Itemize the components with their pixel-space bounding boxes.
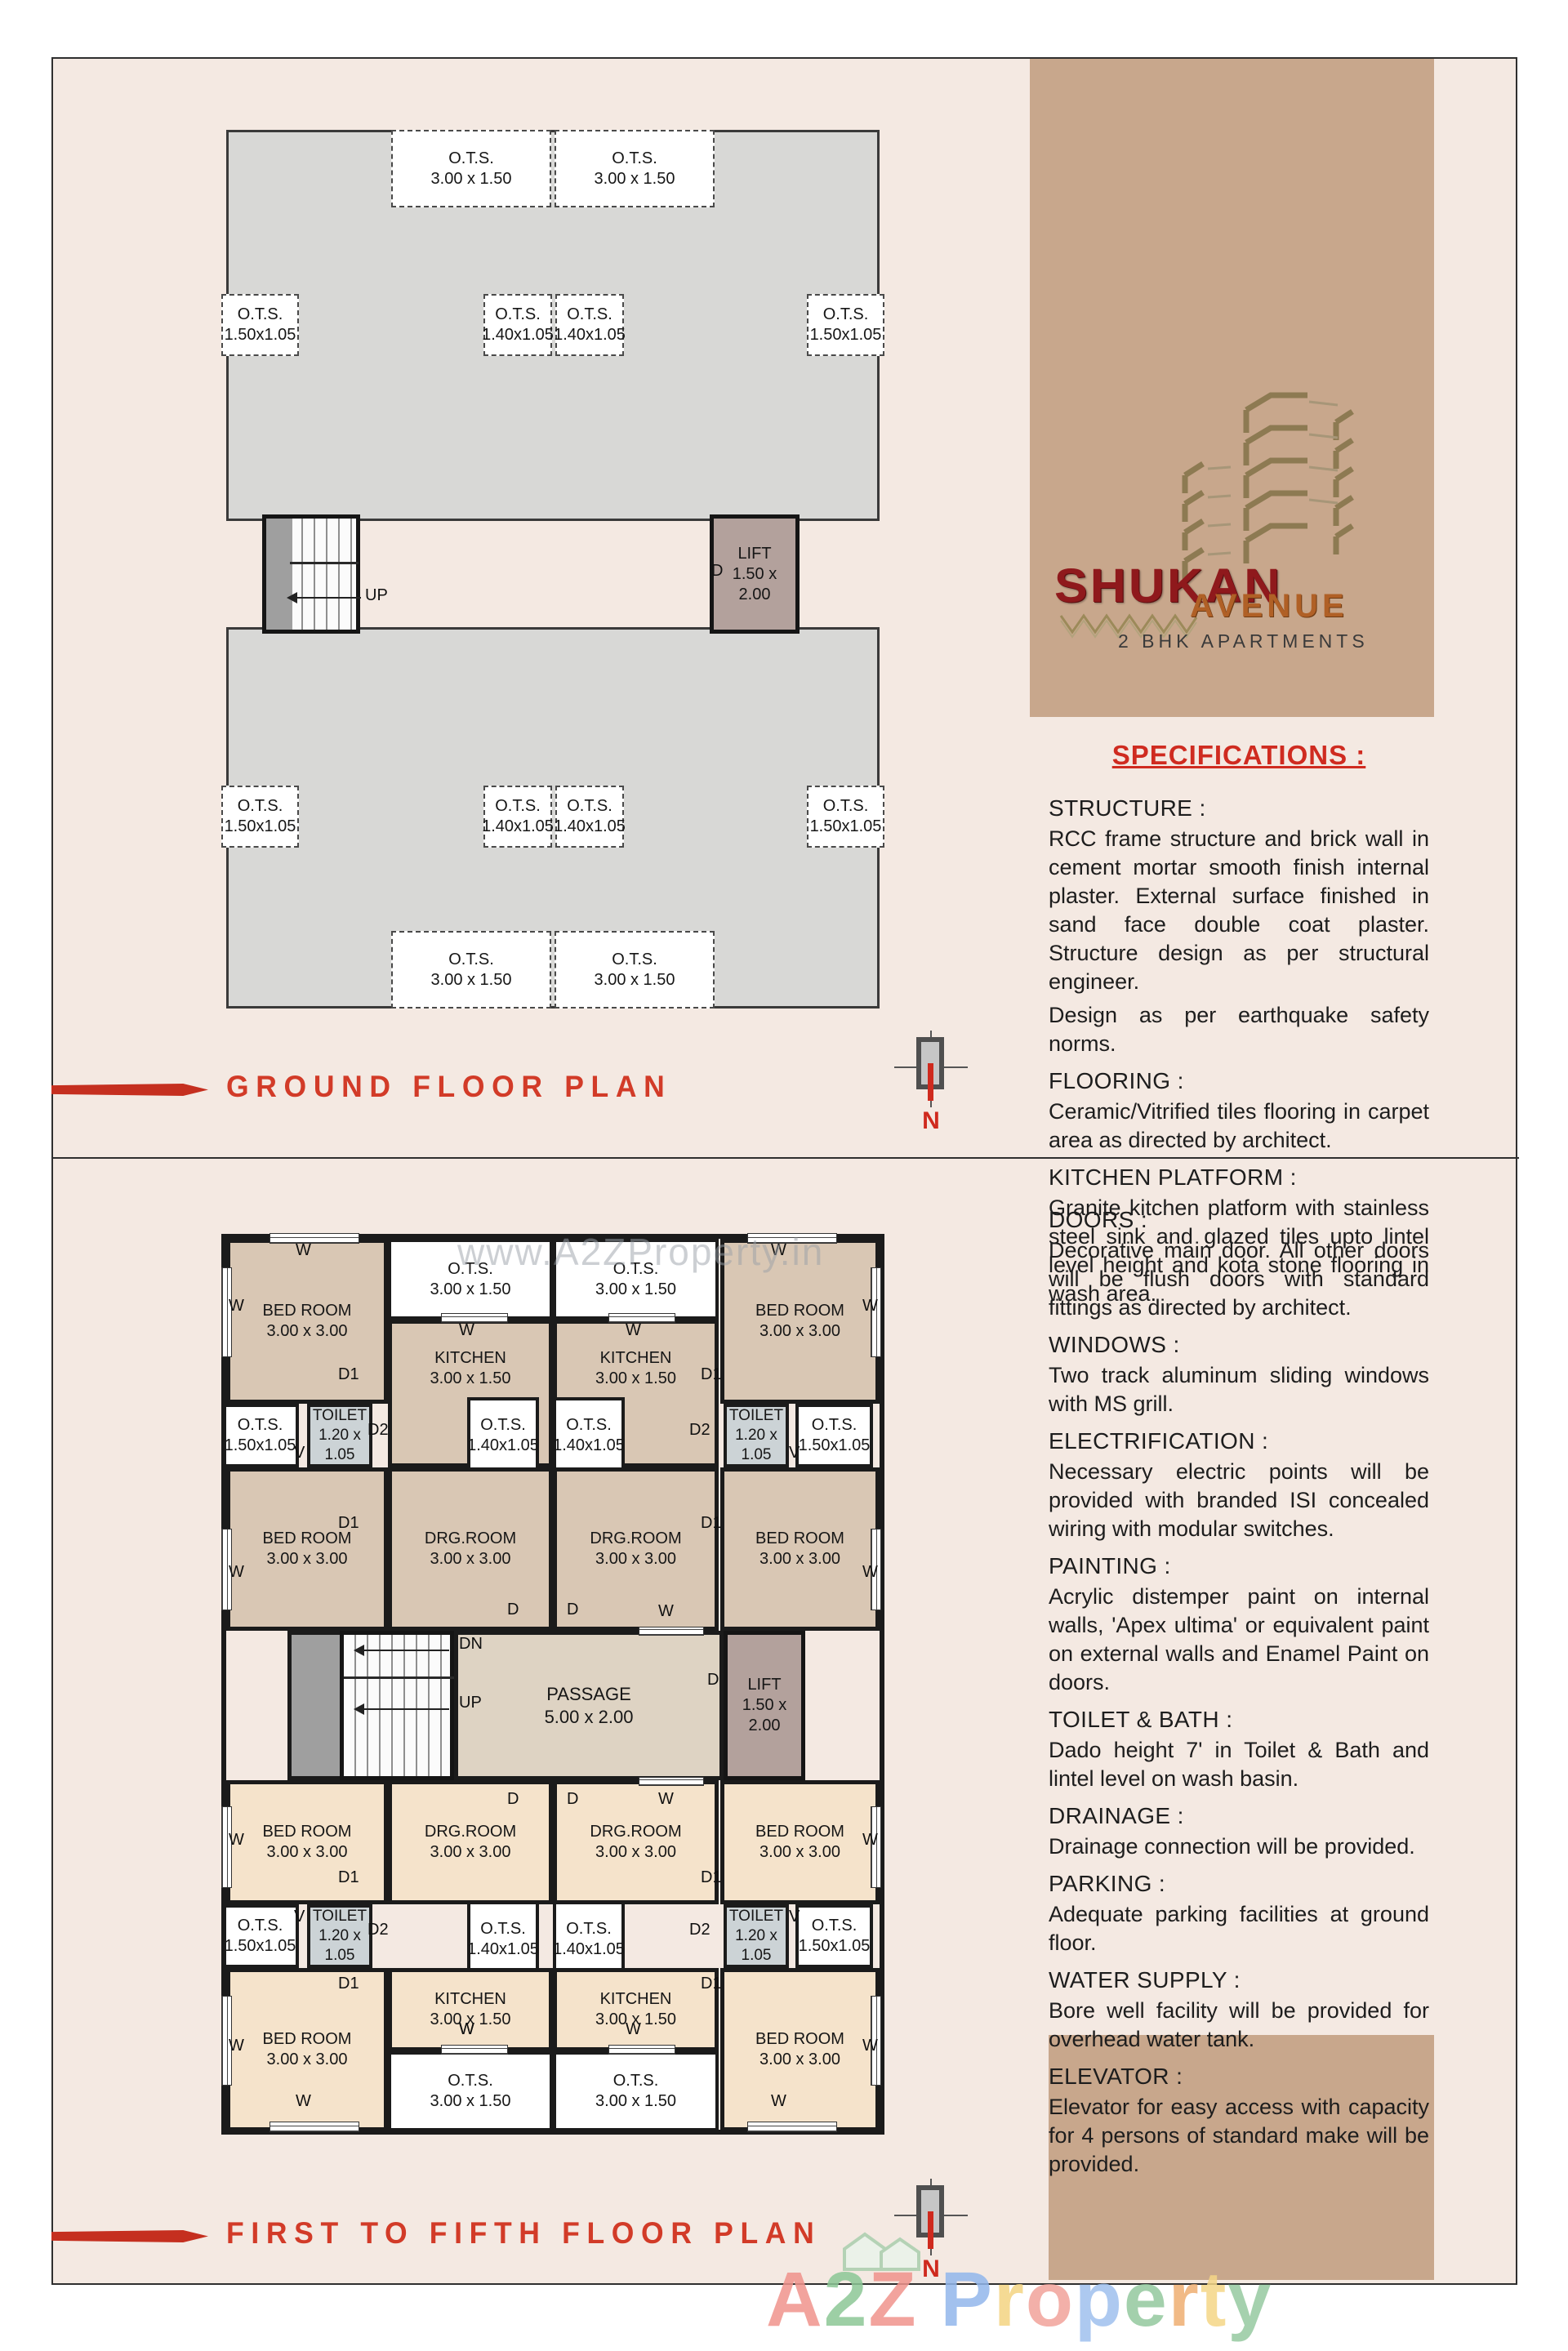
spec-section-body: Bore well facility will be provided for … bbox=[1049, 1997, 1429, 2054]
room-label-line: BED ROOM bbox=[263, 1822, 352, 1842]
room-label-line: 1.50x1.05 bbox=[225, 325, 296, 345]
room-label-line: 1.40x1.05 bbox=[554, 817, 626, 837]
window-label: W bbox=[459, 2020, 474, 2039]
watermark-letter: e bbox=[1124, 2255, 1169, 2344]
window-label: W bbox=[459, 1321, 474, 1340]
toi-1r-box: TOILET1.20 x1.05 bbox=[724, 1404, 789, 1467]
ots-m2-box: O.T.S.1.40x1.05 bbox=[483, 294, 552, 356]
room-label-line: 3.00 x 1.50 bbox=[431, 970, 512, 991]
room-label-line: BED ROOM bbox=[263, 2029, 352, 2050]
room-label-line: DRG.ROOM bbox=[590, 1529, 681, 1549]
window-label: W bbox=[296, 1241, 311, 1260]
door1-label: D1 bbox=[338, 1365, 359, 1384]
room-label-line: 1.05 bbox=[325, 1445, 355, 1465]
room-label-line: O.T.S. bbox=[612, 950, 657, 970]
room-label-line: 3.00 x 3.00 bbox=[759, 1842, 840, 1863]
room-label-line: TOILET bbox=[729, 1406, 783, 1426]
room-label-line: DRG.ROOM bbox=[590, 1822, 681, 1842]
north-label: N bbox=[894, 1107, 968, 1135]
window-label: W bbox=[229, 1831, 244, 1850]
room-label-line: 1.20 x bbox=[318, 1426, 361, 1445]
room-label-line: 3.00 x 3.00 bbox=[267, 1549, 348, 1570]
room-label-line: O.T.S. bbox=[238, 1916, 283, 1936]
room-label-line: BED ROOM bbox=[755, 2029, 844, 2050]
room-label-line: 1.40x1.05 bbox=[553, 1436, 625, 1456]
compass-needle bbox=[928, 1063, 933, 1101]
room-label-line: 1.50x1.05 bbox=[225, 1936, 296, 1957]
door-label: D bbox=[507, 1601, 519, 1619]
room-label-line: 1.20 x bbox=[735, 1926, 777, 1946]
room-label-line: O.T.S. bbox=[238, 305, 283, 325]
room-label-line: 3.00 x 3.00 bbox=[267, 1842, 348, 1863]
room-label-line: TOILET bbox=[313, 1406, 367, 1426]
room-label-line: 1.40x1.05 bbox=[467, 1939, 539, 1960]
down-label: DN bbox=[459, 1635, 483, 1654]
room-label-line: O.T.S. bbox=[495, 305, 541, 325]
watermark-letter: p bbox=[1075, 2255, 1124, 2344]
room-label-line: O.T.S. bbox=[448, 149, 494, 169]
room-label-line: 1.50x1.05 bbox=[799, 1436, 871, 1456]
ots-r1a-box: O.T.S.1.50x1.05 bbox=[221, 1404, 299, 1467]
ots-bot1-box: O.T.S.3.00 x 1.50 bbox=[391, 931, 551, 1009]
bed-2l-box: BED ROOM3.00 x 3.00 bbox=[226, 1467, 388, 1631]
bed-2r-box: BED ROOM3.00 x 3.00 bbox=[720, 1467, 880, 1631]
window-label: W bbox=[229, 1563, 244, 1582]
room-label-line: BED ROOM bbox=[263, 1301, 352, 1321]
window-symbol bbox=[269, 2122, 359, 2132]
spec-section-body: Decorative main door. All other doors wi… bbox=[1049, 1236, 1429, 1322]
stair-flight-split bbox=[290, 562, 359, 564]
door-label: D bbox=[707, 1671, 719, 1690]
spec-section-body: Design as per earthquake safety norms. bbox=[1049, 1001, 1429, 1058]
upper-title-bar bbox=[51, 2230, 208, 2242]
room-label-line: DRG.ROOM bbox=[425, 1822, 516, 1842]
room-label-line: 3.00 x 3.00 bbox=[759, 2050, 840, 2070]
stair-landing bbox=[266, 519, 292, 630]
room-label-line: O.T.S. bbox=[613, 2071, 659, 2091]
room-label-line: KITCHEN bbox=[600, 1989, 672, 2010]
room-label-line: 3.00 x 1.50 bbox=[430, 1280, 511, 1300]
ots-bot2-box: O.T.S.3.00 x 1.50 bbox=[555, 931, 715, 1009]
window-label: W bbox=[862, 1831, 878, 1850]
room-label-line: 1.20 x bbox=[735, 1426, 777, 1445]
ots-r1b-box: O.T.S.1.40x1.05 bbox=[467, 1397, 539, 1474]
watermark-letter: r bbox=[1169, 2255, 1200, 2344]
spec-section-label: TOILET & BATH : bbox=[1049, 1707, 1429, 1733]
door2-label: D2 bbox=[367, 1421, 389, 1440]
room-label-line: 1.40x1.05 bbox=[482, 325, 554, 345]
door2-label: D2 bbox=[689, 1921, 710, 1939]
house-icon bbox=[836, 2224, 934, 2273]
room-label-line: 3.00 x 1.50 bbox=[595, 970, 675, 991]
ground-title-bar bbox=[51, 1084, 208, 1096]
ots-b2-box: O.T.S.1.40x1.05 bbox=[483, 786, 552, 848]
door2-label: D2 bbox=[367, 1921, 389, 1939]
spec-section-label: FLOORING : bbox=[1049, 1068, 1429, 1094]
spec-section-label: WINDOWS : bbox=[1049, 1332, 1429, 1358]
room-label-line: KITCHEN bbox=[600, 1348, 672, 1369]
room-label-line: 2.00 bbox=[749, 1716, 781, 1736]
vent-label: V bbox=[789, 1908, 800, 1926]
ots-t2-box: O.T.S.3.00 x 1.50 bbox=[555, 130, 715, 207]
room-label-line: TOILET bbox=[313, 1907, 367, 1926]
room-label-line: 3.00 x 1.50 bbox=[595, 1280, 676, 1300]
specifications-heading: SPECIFICATIONS : bbox=[1049, 740, 1429, 771]
room-label-line: 1.50x1.05 bbox=[810, 325, 882, 345]
spec-section-body: RCC frame structure and brick wall in ce… bbox=[1049, 825, 1429, 996]
window-label: W bbox=[626, 2020, 641, 2039]
room-label-line: O.T.S. bbox=[238, 796, 283, 817]
door1-label: D1 bbox=[338, 1514, 359, 1533]
room-label-line: O.T.S. bbox=[812, 1916, 857, 1936]
room-label-line: O.T.S. bbox=[567, 796, 612, 817]
room-label-line: 3.00 x 3.00 bbox=[430, 1549, 511, 1570]
watermark-letter: t bbox=[1200, 2255, 1228, 2344]
bed-4r-box: BED ROOM3.00 x 3.00 bbox=[720, 1968, 880, 2131]
room-label-line: 1.40x1.05 bbox=[553, 1939, 625, 1960]
ots-b1-box: O.T.S.1.50x1.05 bbox=[221, 786, 299, 848]
stair-up-arrow-upper bbox=[364, 1708, 449, 1710]
spec-section-body: Dado height 7' in Toilet & Bath and lint… bbox=[1049, 1736, 1429, 1793]
door-label: D bbox=[567, 1790, 578, 1809]
brand-name-2: AVENUE bbox=[1190, 588, 1348, 625]
window-symbol bbox=[441, 1313, 508, 1323]
ots-r2a-box: O.T.S.1.50x1.05 bbox=[221, 1904, 299, 1968]
room-label-line: 3.00 x 3.00 bbox=[595, 1842, 676, 1863]
passage-box: PASSAGE5.00 x 2.00 bbox=[454, 1631, 724, 1780]
window-symbol bbox=[639, 1627, 704, 1636]
up-label: UP bbox=[365, 586, 388, 605]
spec-section-label: DOORS : bbox=[1049, 1207, 1429, 1233]
ots-b4-box: O.T.S.1.50x1.05 bbox=[807, 786, 884, 848]
spec-section-body: Elevator for easy access with capacity f… bbox=[1049, 2093, 1429, 2179]
spec-section-label: KITCHEN PLATFORM : bbox=[1049, 1164, 1429, 1191]
watermark-letter: A bbox=[766, 2255, 824, 2344]
window-label: W bbox=[229, 1297, 244, 1316]
first-fifth-floor-title: FIRST TO FIFTH FLOOR PLAN bbox=[226, 2216, 821, 2251]
window-symbol bbox=[269, 1233, 359, 1244]
north-compass-ground: N bbox=[894, 1031, 968, 1137]
room-label-line: 2.00 bbox=[739, 585, 771, 605]
plan-watermark: www.A2ZProperty.in bbox=[457, 1230, 824, 1274]
room-label-line: 3.00 x 3.00 bbox=[430, 1842, 511, 1863]
spec-section-label: WATER SUPPLY : bbox=[1049, 1967, 1429, 1993]
toi-1l-box: TOILET1.20 x1.05 bbox=[307, 1404, 372, 1467]
room-label-line: O.T.S. bbox=[448, 2071, 493, 2091]
window-label: W bbox=[626, 1321, 641, 1340]
spec-section-label: PARKING : bbox=[1049, 1871, 1429, 1897]
room-label-line: O.T.S. bbox=[480, 1919, 526, 1939]
watermark-letter: P bbox=[940, 2255, 993, 2344]
stair-flight-split-upper bbox=[344, 1676, 454, 1679]
room-label-line: DRG.ROOM bbox=[425, 1529, 516, 1549]
door1-label: D1 bbox=[701, 1514, 722, 1533]
door-label: D bbox=[507, 1790, 519, 1809]
room-label-line: 3.00 x 1.50 bbox=[430, 1369, 511, 1389]
brand-tagline: 2 BHK APARTMENTS bbox=[1118, 630, 1369, 652]
bed-3l-box: BED ROOM3.00 x 3.00 bbox=[226, 1780, 388, 1904]
window-symbol bbox=[441, 2045, 508, 2055]
room-label-line: 5.00 x 2.00 bbox=[545, 1706, 634, 1729]
room-label-line: O.T.S. bbox=[567, 305, 612, 325]
lift-box: LIFT1.50 x2.00 bbox=[710, 514, 800, 634]
door-label: D bbox=[567, 1601, 578, 1619]
room-label-line: 1.20 x bbox=[318, 1926, 361, 1946]
ots-m1-box: O.T.S.1.50x1.05 bbox=[221, 294, 299, 356]
room-label-line: KITCHEN bbox=[434, 1348, 506, 1369]
room-label-line: 1.50x1.05 bbox=[225, 1436, 296, 1456]
watermark-letter: o bbox=[1026, 2255, 1075, 2344]
ots-r1c-box: O.T.S.1.40x1.05 bbox=[553, 1397, 625, 1474]
landing-box bbox=[287, 1631, 345, 1780]
room-label-line: 1.05 bbox=[742, 1445, 772, 1465]
window-label: W bbox=[862, 1297, 878, 1316]
room-label-line: 1.50x1.05 bbox=[799, 1936, 871, 1957]
drg-2l-box: DRG.ROOM3.00 x 3.00 bbox=[388, 1780, 553, 1904]
room-label-line: BED ROOM bbox=[755, 1529, 844, 1549]
window-label: W bbox=[862, 2037, 878, 2055]
room-label-line: 3.00 x 3.00 bbox=[759, 1321, 840, 1342]
ots-t1-box: O.T.S.3.00 x 1.50 bbox=[391, 130, 551, 207]
ots-b1-box: O.T.S.3.00 x 1.50 bbox=[388, 2051, 553, 2131]
toi-2r-box: TOILET1.20 x1.05 bbox=[724, 1904, 789, 1968]
vent-label: V bbox=[789, 1444, 800, 1463]
window-label: W bbox=[658, 1602, 674, 1621]
room-label-line: 3.00 x 3.00 bbox=[759, 1549, 840, 1570]
window-symbol bbox=[608, 1313, 675, 1323]
room-label-line: O.T.S. bbox=[823, 796, 869, 817]
room-label-line: O.T.S. bbox=[812, 1415, 857, 1436]
room-label-line: 3.00 x 3.00 bbox=[267, 2050, 348, 2070]
room-label-line: O.T.S. bbox=[566, 1415, 612, 1436]
vent-label: V bbox=[294, 1908, 305, 1926]
up-label: UP bbox=[459, 1694, 482, 1712]
watermark-letter: r bbox=[994, 2255, 1026, 2344]
door1-label: D1 bbox=[701, 1365, 722, 1384]
bed-3r-box: BED ROOM3.00 x 3.00 bbox=[720, 1780, 880, 1904]
ots-m4-box: O.T.S.1.50x1.05 bbox=[807, 294, 884, 356]
ots-r1d-box: O.T.S.1.50x1.05 bbox=[795, 1404, 873, 1467]
room-label-line: O.T.S. bbox=[238, 1415, 283, 1436]
spec-section-body: Necessary electric points will be provid… bbox=[1049, 1458, 1429, 1543]
room-label-line: LIFT bbox=[747, 1675, 781, 1695]
ots-r2c-box: O.T.S.1.40x1.05 bbox=[553, 1901, 625, 1978]
vent-label: V bbox=[294, 1444, 305, 1463]
room-label-line: 1.40x1.05 bbox=[554, 325, 626, 345]
spec-section-body: Acrylic distemper paint on internal wall… bbox=[1049, 1583, 1429, 1697]
spec-section-label: DRAINAGE : bbox=[1049, 1803, 1429, 1829]
ots-b3-box: O.T.S.1.40x1.05 bbox=[555, 786, 624, 848]
room-label-line: O.T.S. bbox=[566, 1919, 612, 1939]
spec-section-body: Adequate parking facilities at ground fl… bbox=[1049, 1900, 1429, 1957]
window-label: W bbox=[296, 2092, 311, 2111]
room-label-line: O.T.S. bbox=[823, 305, 869, 325]
stair-up-arrow bbox=[297, 597, 361, 599]
room-label-line: O.T.S. bbox=[480, 1415, 526, 1436]
room-label-line: KITCHEN bbox=[434, 1989, 506, 2010]
spec-section-body: Two track aluminum sliding windows with … bbox=[1049, 1361, 1429, 1418]
room-label-line: 3.00 x 1.50 bbox=[595, 169, 675, 189]
room-label-line: O.T.S. bbox=[448, 950, 494, 970]
room-label-line: O.T.S. bbox=[495, 796, 541, 817]
watermark-letter: y bbox=[1227, 2255, 1272, 2344]
room-label-line: 3.00 x 1.50 bbox=[595, 2091, 676, 2112]
room-label-line: 1.40x1.05 bbox=[467, 1436, 539, 1456]
door-label: D bbox=[711, 562, 723, 581]
door2-label: D2 bbox=[689, 1421, 710, 1440]
ots-r2d-box: O.T.S.1.50x1.05 bbox=[795, 1904, 873, 1968]
window-label: W bbox=[862, 1563, 878, 1582]
ots-r2b-box: O.T.S.1.40x1.05 bbox=[467, 1901, 539, 1978]
specifications-bottom: DOORS :Decorative main door. All other d… bbox=[1049, 1197, 1429, 2184]
room-label-line: PASSAGE bbox=[546, 1683, 631, 1706]
door1-label: D1 bbox=[701, 1868, 722, 1887]
window-symbol bbox=[747, 2122, 837, 2132]
brochure-page: GROUND FLOOR PLAN FIRST TO FIFTH FLOOR P… bbox=[0, 0, 1568, 2351]
ots-b2-box: O.T.S.3.00 x 1.50 bbox=[553, 2051, 719, 2131]
logo-panel: SHUKAN AVENUE 2 BHK APARTMENTS bbox=[1030, 59, 1434, 717]
spec-section-label: STRUCTURE : bbox=[1049, 795, 1429, 822]
room-label-line: O.T.S. bbox=[612, 149, 657, 169]
door1-label: D1 bbox=[338, 1975, 359, 1993]
door1-label: D1 bbox=[701, 1975, 722, 1993]
room-label-line: 1.50 x bbox=[742, 1695, 786, 1716]
room-label-line: 1.40x1.05 bbox=[482, 817, 554, 837]
room-label-line: 3.00 x 1.50 bbox=[430, 2091, 511, 2112]
toi-2l-box: TOILET1.20 x1.05 bbox=[307, 1904, 372, 1968]
ground-floor-title: GROUND FLOOR PLAN bbox=[226, 1070, 671, 1104]
spec-section-label: ELECTRIFICATION : bbox=[1049, 1428, 1429, 1454]
room-label-line: TOILET bbox=[729, 1907, 783, 1926]
room-label-line: 1.05 bbox=[742, 1946, 772, 1966]
window-label: W bbox=[771, 2092, 786, 2111]
spec-section-label: ELEVATOR : bbox=[1049, 2064, 1429, 2090]
room-label-line: 1.50x1.05 bbox=[810, 817, 882, 837]
spec-section-label: PAINTING : bbox=[1049, 1553, 1429, 1579]
room-label-line: 1.50x1.05 bbox=[225, 817, 296, 837]
window-symbol bbox=[608, 2045, 675, 2055]
drg-l-box: DRG.ROOM3.00 x 3.00 bbox=[388, 1467, 553, 1631]
room-label-line: BED ROOM bbox=[755, 1822, 844, 1842]
window-label: W bbox=[658, 1790, 674, 1809]
room-label-line: 3.00 x 1.50 bbox=[431, 169, 512, 189]
window-symbol bbox=[639, 1777, 704, 1786]
spec-section-body: Drainage connection will be provided. bbox=[1049, 1832, 1429, 1861]
room-label-line: 3.00 x 3.00 bbox=[595, 1549, 676, 1570]
room-label-line: LIFT bbox=[737, 544, 771, 564]
room-label-line: 1.05 bbox=[325, 1946, 355, 1966]
spec-section-body: Ceramic/Vitrified tiles flooring in carp… bbox=[1049, 1098, 1429, 1155]
door1-label: D1 bbox=[338, 1868, 359, 1887]
room-label-line: 3.00 x 3.00 bbox=[267, 1321, 348, 1342]
site-watermark: A2Z Property bbox=[766, 2255, 1272, 2344]
ots-m3-box: O.T.S.1.40x1.05 bbox=[555, 294, 624, 356]
ground-staircase bbox=[262, 514, 360, 634]
room-label-line: 3.00 x 1.50 bbox=[595, 1369, 676, 1389]
window-label: W bbox=[229, 2037, 244, 2055]
bed-tl-box: BED ROOM3.00 x 3.00 bbox=[226, 1239, 388, 1404]
room-label-line: 1.50 x bbox=[733, 564, 777, 585]
stair-dn-arrow bbox=[364, 1650, 449, 1651]
room-label-line: BED ROOM bbox=[755, 1301, 844, 1321]
lift-box: LIFT1.50 x2.00 bbox=[724, 1631, 805, 1780]
